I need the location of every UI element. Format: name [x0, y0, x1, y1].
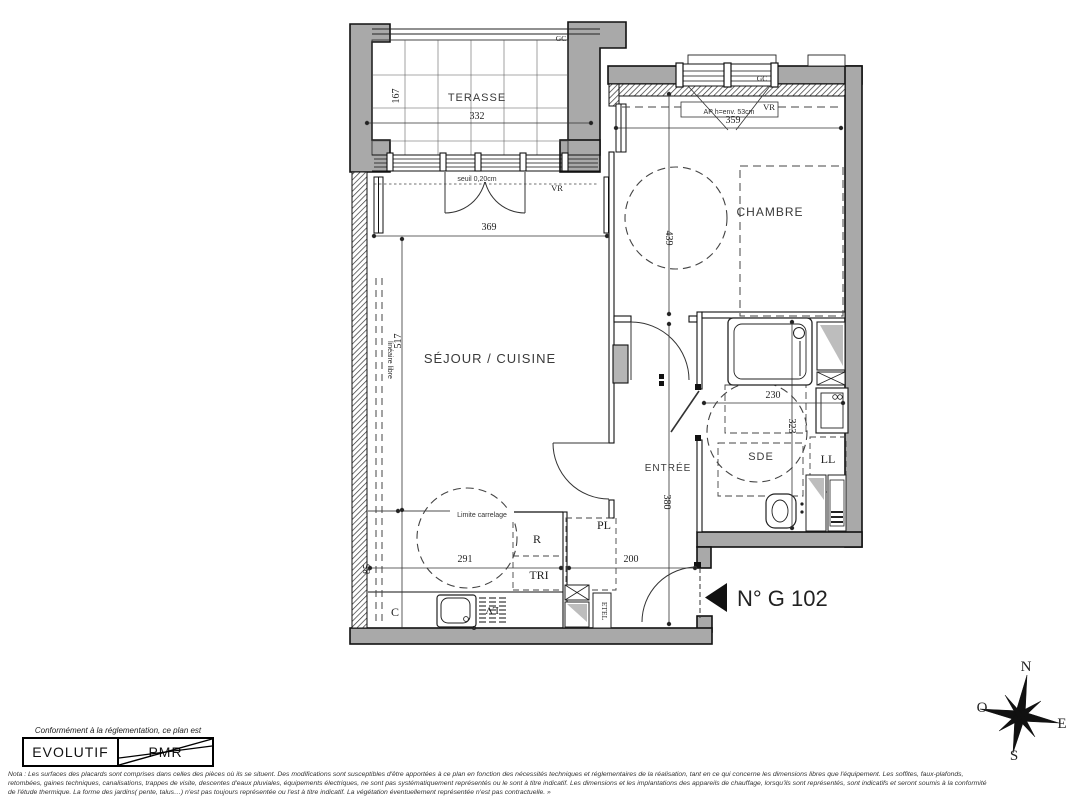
nota-line-3: de l'étude thermique. La forme des jardi…	[8, 788, 1086, 797]
compass-north: N	[1021, 659, 1032, 675]
dim-terrace-width: 332	[470, 111, 485, 122]
dishwasher-label: LV	[485, 604, 499, 616]
nota-text: Nota : Les surfaces des placards sont co…	[8, 770, 1086, 797]
dim-counter-depth: 85	[362, 564, 373, 574]
gc-label-terrace: GC	[556, 34, 566, 43]
compass-south: S	[1010, 748, 1018, 764]
dim-living-depth: 517	[393, 334, 404, 349]
legend-option-pmr: PMR	[117, 739, 212, 765]
dim-shower-width: 230	[766, 390, 781, 401]
nota-line-1: Nota : Les surfaces des placards sont co…	[8, 770, 1086, 779]
room-label-terrace: TERASSE	[448, 92, 506, 104]
entrance-arrow-icon	[705, 583, 727, 612]
closet-label: PL	[597, 518, 611, 532]
vr-label-living: VR	[551, 183, 563, 193]
dim-shower-depth: 323	[786, 419, 797, 434]
dim-living-width: 369	[482, 222, 497, 233]
floor-plan-page: TERASSE 332 167 GC CHAMBRE GC VR AP h=en…	[0, 0, 1090, 800]
bathroom-cabinets	[816, 322, 848, 433]
kitchen-unit-label: C	[391, 605, 399, 619]
label-halos	[446, 172, 514, 519]
kitchen-items	[374, 184, 616, 630]
room-label-entrance: ENTRÉE	[645, 461, 692, 474]
regulation-legend: Conformément à la réglementation, ce pla…	[22, 726, 214, 767]
compass-east: E	[1057, 716, 1066, 732]
room-label-shower: SDE	[748, 451, 774, 463]
dim-bedroom-depth: 439	[663, 231, 674, 246]
gc-label-bedroom: GC	[757, 74, 767, 83]
compass-west: O	[977, 700, 988, 716]
tile-limit-label: Limite carrelage	[457, 512, 507, 519]
entrance-marker: N° G 102	[705, 583, 828, 612]
legend-box: EVOLUTIF PMR	[22, 737, 214, 767]
compass-rose-icon: N O E S	[977, 659, 1067, 764]
room-label-bedroom: CHAMBRE	[736, 205, 803, 219]
legend-option-evolutif: EVOLUTIF	[24, 739, 117, 765]
free-run-label: linéaire libre	[386, 341, 393, 379]
nota-line-2: retombées, gaines techniques, canalisati…	[8, 779, 1086, 788]
dim-hall-width: 200	[624, 554, 639, 565]
room-label-living: SÉJOUR / CUISINE	[424, 351, 556, 366]
washing-machine-label: LL	[821, 452, 836, 466]
shower-tray	[728, 318, 812, 385]
toilet	[766, 494, 804, 528]
bay-window	[372, 153, 600, 171]
dim-terrace-depth: 167	[391, 89, 402, 104]
legend-caption: Conformément à la réglementation, ce pla…	[22, 726, 214, 735]
dim-entrance-depth: 380	[661, 495, 672, 510]
pmr-strike-icon	[119, 739, 212, 765]
etel-label: ETEL	[600, 602, 609, 621]
tri-label: TRI	[529, 568, 548, 582]
floor-plan-drawing: TERASSE 332 167 GC CHAMBRE GC VR AP h=en…	[0, 0, 1090, 800]
threshold-label: seuil 0,20cm	[457, 176, 496, 183]
shower-room-items	[707, 318, 848, 531]
dim-bedroom-width: 359	[726, 115, 741, 126]
dim-kitchen-width: 291	[458, 554, 473, 565]
vr-label-bedroom: VR	[763, 102, 775, 112]
corner-cabinets	[806, 475, 846, 531]
fridge-label: R	[533, 532, 541, 546]
free-run-lines	[376, 278, 382, 626]
unit-number: N° G 102	[737, 586, 828, 611]
kitchen-sink	[437, 595, 476, 630]
